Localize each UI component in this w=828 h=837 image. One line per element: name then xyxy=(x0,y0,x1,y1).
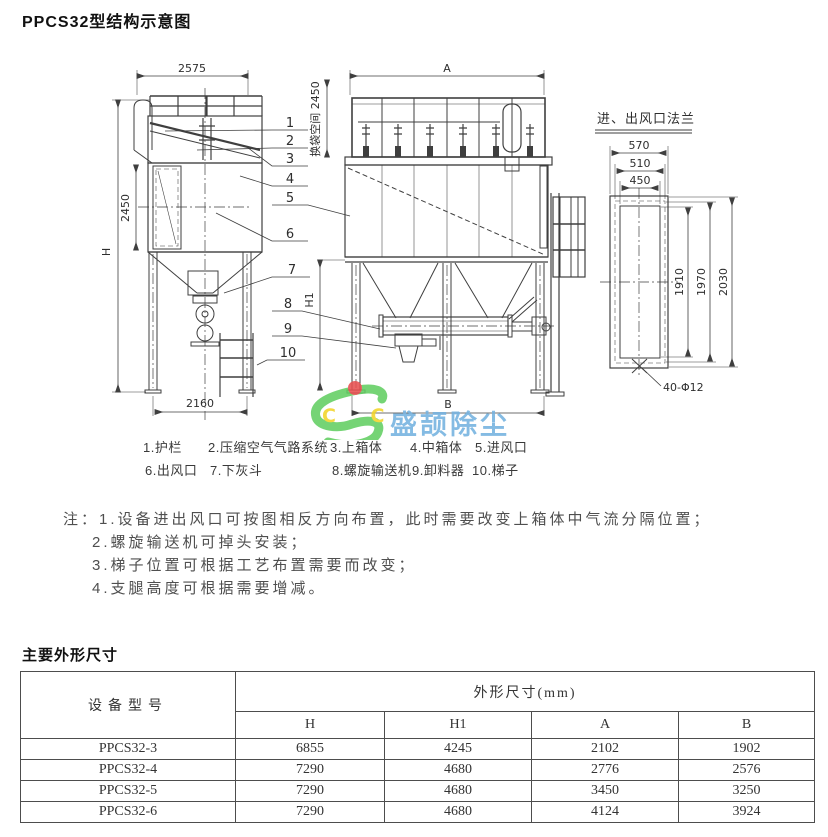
callout-3: 3 xyxy=(286,152,294,167)
callout-10: 10 xyxy=(280,346,297,361)
watermark-name: 盛颉除尘 xyxy=(390,409,510,440)
flange-detail-view: 进、出风口法兰 570 510 450 1910 1970 2030 40-Φ1… xyxy=(595,112,738,394)
air-divider-line xyxy=(348,168,545,255)
cell-A: 4124 xyxy=(532,802,679,823)
table-row: PPCS32-5 7290 4680 3450 3250 xyxy=(21,781,815,802)
cell-H1: 4680 xyxy=(385,802,532,823)
legend-item-6: 6.出风口 xyxy=(145,460,197,479)
cell-A: 3450 xyxy=(532,781,679,802)
legend-item-8: 8.螺旋输送机 xyxy=(332,460,411,479)
cell-B: 3924 xyxy=(679,802,815,823)
table-row: PPCS32-4 7290 4680 2776 2576 xyxy=(21,760,815,781)
cell-H: 6855 xyxy=(236,739,385,760)
front-view: 2575 H 2450 2160 xyxy=(100,62,262,420)
hoppers-side xyxy=(345,257,548,318)
note-text-2: 2.螺旋输送机可掉头安装； xyxy=(92,534,309,551)
dim-1910: 1910 xyxy=(673,268,686,296)
legend-item-7: 7.下灰斗 xyxy=(210,460,262,479)
subheader-A: A xyxy=(532,712,679,739)
callout-6: 6 xyxy=(286,227,294,242)
note-line-3: 3.梯子位置可根据工艺布置需要而改变； xyxy=(92,554,813,577)
middle-box-side xyxy=(345,165,548,257)
dim-2160: 2160 xyxy=(186,397,214,410)
dim-2030: 2030 xyxy=(717,268,730,296)
cell-H: 7290 xyxy=(236,760,385,781)
cell-model: PPCS32-6 xyxy=(21,802,236,823)
note-text-1: 1.设备进出风口可按图相反方向布置，此时需要改变上箱体中气流分隔位置； xyxy=(99,511,712,528)
parts-legend: 1.护栏 2.压缩空气气路系统 3.上箱体 4.中箱体 5.进风口 6.出风口 … xyxy=(0,437,828,483)
cell-H: 7290 xyxy=(236,802,385,823)
bolt-holes-label: 40-Φ12 xyxy=(663,381,704,394)
cell-A: 2776 xyxy=(532,760,679,781)
ladder xyxy=(220,333,253,397)
legend-item-2: 2.压缩空气气路系统 xyxy=(208,437,328,456)
note-text-4: 4.支腿高度可根据需要增减。 xyxy=(92,580,327,597)
legend-item-4: 4.中箱体 xyxy=(410,437,462,456)
dim-510: 510 xyxy=(630,157,651,170)
legend-item-1: 1.护栏 xyxy=(143,437,182,456)
side-view: A 换袋空间 2450 H1 B xyxy=(303,62,585,416)
legend-item-5: 5.进风口 xyxy=(475,437,527,456)
watermark-red-dot xyxy=(348,381,362,395)
support-legs-front xyxy=(145,252,255,393)
note-line-2: 2.螺旋输送机可掉头安装； xyxy=(92,531,813,554)
legend-item-10: 10.梯子 xyxy=(472,460,519,479)
cell-A: 2102 xyxy=(532,739,679,760)
table-row: PPCS32-3 6855 4245 2102 1902 xyxy=(21,739,815,760)
cell-H1: 4680 xyxy=(385,760,532,781)
dim-2575: 2575 xyxy=(178,62,206,75)
legend-item-3: 3.上箱体 xyxy=(330,437,382,456)
dim-1970: 1970 xyxy=(695,268,708,296)
dim-2450: 2450 xyxy=(119,194,132,222)
flange-title: 进、出风口法兰 xyxy=(597,112,695,127)
header-dims: 外形尺寸(mm) xyxy=(236,672,815,712)
subheader-B: B xyxy=(679,712,815,739)
table-row: PPCS32-6 7290 4680 4124 3924 xyxy=(21,802,815,823)
cell-H1: 4680 xyxy=(385,781,532,802)
cell-H1: 4245 xyxy=(385,739,532,760)
callout-9: 9 xyxy=(284,322,292,337)
note-line-1: 注：1.设备进出风口可按图相反方向布置，此时需要改变上箱体中气流分隔位置； xyxy=(63,508,813,531)
screw-conveyor xyxy=(372,297,556,337)
notes: 注：1.设备进出风口可按图相反方向布置，此时需要改变上箱体中气流分隔位置； 2.… xyxy=(63,508,813,600)
inlet-flange-side xyxy=(546,193,585,396)
cell-H: 7290 xyxy=(236,781,385,802)
dimensions-section-title: 主要外形尺寸 xyxy=(22,644,118,665)
notes-prefix: 注： xyxy=(63,511,99,528)
side-dimensions: A 换袋空间 2450 H1 B xyxy=(303,62,544,416)
subheader-H: H xyxy=(236,712,385,739)
watermark: C C 盛颉除尘 xyxy=(315,381,510,440)
structure-drawing: 2575 H 2450 2160 1 2 3 4 5 6 7 8 9 10 xyxy=(0,55,828,440)
legend-item-9: 9.卸料器 xyxy=(412,460,464,479)
callout-2: 2 xyxy=(286,134,294,149)
subheader-H1: H1 xyxy=(385,712,532,739)
cell-B: 2576 xyxy=(679,760,815,781)
cell-model: PPCS32-5 xyxy=(21,781,236,802)
cell-model: PPCS32-3 xyxy=(21,739,236,760)
dim-H: H xyxy=(100,248,113,256)
document-page: { "page": { "title": "PPCS32型结构示意图", "di… xyxy=(0,0,828,837)
callout-4: 4 xyxy=(286,172,294,187)
front-dimensions: 2575 H 2450 2160 xyxy=(100,62,248,416)
air-tank-front xyxy=(134,100,152,163)
note-line-4: 4.支腿高度可根据需要增减。 xyxy=(92,577,813,600)
callout-1: 1 xyxy=(286,116,294,131)
callout-7: 7 xyxy=(288,263,296,278)
dimensions-table: 设备型号 外形尺寸(mm) H H1 A B PPCS32-3 6855 424… xyxy=(20,671,815,823)
cell-B: 1902 xyxy=(679,739,815,760)
header-model: 设备型号 xyxy=(21,672,236,739)
dim-570: 570 xyxy=(629,139,650,152)
dim-bag-space: 换袋空间 2450 xyxy=(308,81,322,157)
dim-H1: H1 xyxy=(303,292,316,307)
rotary-feeder xyxy=(395,334,440,362)
watermark-logo-letters: C C xyxy=(322,405,399,427)
upper-box-side xyxy=(345,98,552,171)
handrail xyxy=(150,96,262,116)
note-text-3: 3.梯子位置可根据工艺布置需要而改变； xyxy=(92,557,417,574)
cell-B: 3250 xyxy=(679,781,815,802)
page-title: PPCS32型结构示意图 xyxy=(22,8,191,32)
callout-5: 5 xyxy=(286,191,294,206)
cell-model: PPCS32-4 xyxy=(21,760,236,781)
dim-A: A xyxy=(443,62,451,75)
dim-450: 450 xyxy=(630,174,651,187)
callout-8: 8 xyxy=(284,297,292,312)
